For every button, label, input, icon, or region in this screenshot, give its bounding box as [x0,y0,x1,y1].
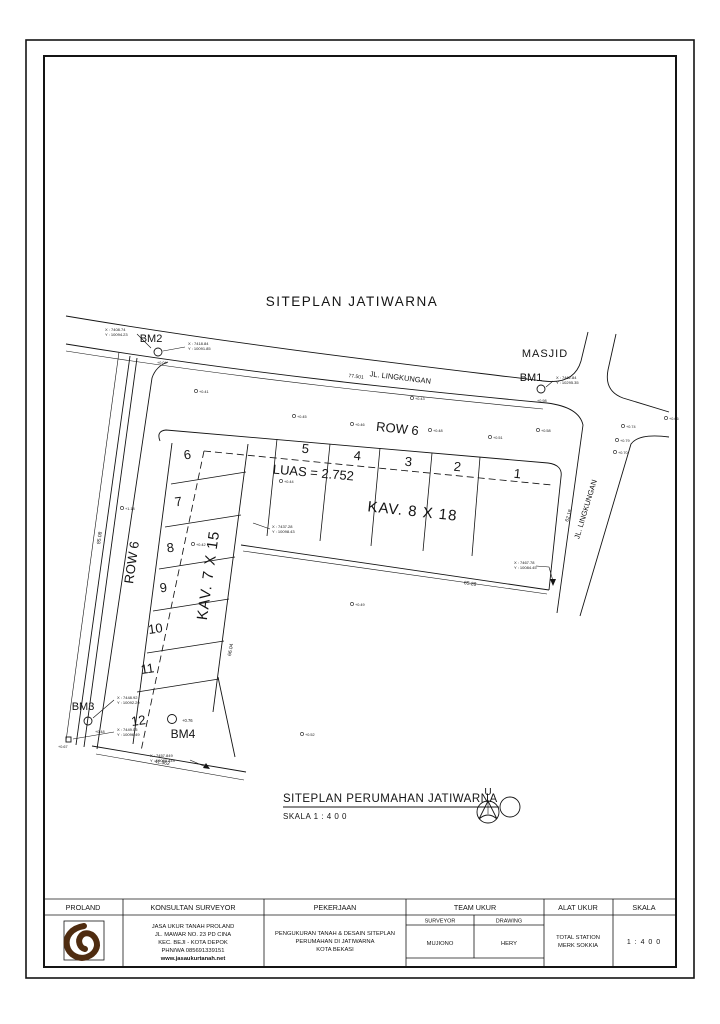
page-title: SITEPLAN JATIWARNA [266,294,439,309]
tb-drawing-name: HERY [501,941,517,947]
spot-elev: +0.74 [626,425,636,429]
bm2-left-y: Y : 10094.23 [105,332,128,337]
spot-elev: +0.49 [355,603,365,607]
tb-team-info: SURVEYOR DRAWING MUJIONO HERY [425,919,523,948]
masjid-label: MASJID [522,348,568,360]
tb-header-konsultan: KONSULTAN SURVEYOR [150,903,235,912]
plot-dividers-top [267,439,480,556]
tb-header-team: TEAM UKUR [454,903,496,912]
spot-elev: +0.48 [433,429,443,433]
bm4-elev: +0.76 [182,718,193,723]
road-right-dimension: 62.18 [564,509,573,523]
plot-6: 6 [183,447,192,463]
bm3-low-y: Y : 10096.49 [117,732,140,737]
plot-11: 11 [140,660,155,677]
benchmark-bm3: BM3 X : 7448.92 Y : 10092.29 X : 7449.05… [58,695,140,749]
road-top-dimension: 77.501 [348,373,364,381]
road-right-label: JL. LINGKUNGAN [572,478,599,540]
plot-numbers-left: 6 7 8 9 10 11 12 [130,447,192,729]
bm3-label: BM3 [72,701,95,713]
dim-left-boundary: 85.08 [96,531,104,544]
tb-konsultan-line: PHN/WA 085691339151 [162,948,225,954]
bm2-label: BM2 [140,333,163,345]
benchmark-bm4: BM4 +0.76 [168,715,196,742]
kavling-block-outline [92,430,561,780]
dim-bottom-arm: 65.28 [464,580,477,588]
plot-3: 3 [404,454,413,470]
dim-col-east: 66.04 [227,643,235,657]
spot-elev: +0.45 [297,415,307,419]
tb-header-alat: ALAT UKUR [558,903,598,912]
siteplan-drawing: SITEPLAN JATIWARNA MASJID JL. LINGKUNGAN… [0,0,720,1024]
spot-elev: +0.66 [669,417,679,421]
spot-elev: +1.18 [125,507,135,511]
bm4-label: BM4 [171,727,196,741]
kav-top-label: KAV. 8 X 18 [367,498,459,524]
plot-8: 8 [166,540,175,556]
tb-pekerjaan-info: PENGUKURAN TANAH & DESAIN SITEPLAN PERUM… [275,931,395,953]
plot-1: 1 [513,466,522,482]
corner-se-y: Y : 10084.45 [514,565,537,570]
proland-logo [64,921,104,960]
spot-elev: +0.52 [305,733,315,737]
caption-title: SITEPLAN PERUMAHAN JATIWARNA [283,793,498,805]
right-road [580,436,669,616]
siteplan-sheet: SITEPLAN JATIWARNA MASJID JL. LINGKUNGAN… [0,0,720,1024]
tb-skala-value: 1 : 4 0 0 [627,939,661,946]
north-label: U [484,787,491,798]
spot-elev: +0.51 [493,436,503,440]
plot-4: 4 [353,448,362,464]
title-block: PROLAND KONSULTAN SURVEYOR PEKERJAAN TEA… [44,899,676,966]
spot-elev: +0.42 [196,543,206,547]
plot-5: 5 [301,441,310,457]
bm1-elev: +0.98 [537,399,547,403]
row-top-label: ROW 6 [375,419,419,438]
spot-elev: +0.46 [355,423,365,427]
tb-alat-line: MERK SOKKIA [558,943,598,949]
plot-10: 10 [147,620,163,637]
plot-2: 2 [453,459,462,475]
tb-konsultan-line: JASA UKUR TANAH PROLAND [152,924,235,930]
bm3-elev: +0.48 [95,730,105,734]
tb-alat-line: TOTAL STATION [556,935,600,941]
tb-konsultan-line: JL. MAWAR NO. 23 PD CINA [155,932,231,938]
bm1-y: Y : 10295.35 [556,380,579,385]
tb-header-pekerjaan: PEKERJAAN [314,903,357,912]
bm2-right-y: Y : 10091.85 [188,346,211,351]
tb-header-skala: SKALA [632,903,655,912]
tb-pekerjaan-line: PERUMAHAN DI JATIWARNA [296,939,375,945]
tb-konsultan-line: KEC. BEJI - KOTA DEPOK [158,940,228,946]
spot-elev: +0.43 [415,397,425,401]
tb-pekerjaan-line: KOTA BEKASI [316,947,354,953]
tb-surveyor-label: SURVEYOR [425,919,456,925]
plot-7: 7 [174,494,183,510]
road-top-label: JL. LINGKUNGAN [369,369,431,385]
spot-elev: +0.44 [284,480,294,484]
tb-header-proland: PROLAND [66,903,101,912]
boundary-dimensions: 85.08 66.04 65.28 41.562 [96,531,477,767]
tb-konsultan-info: JASA UKUR TANAH PROLAND JL. MAWAR NO. 23… [152,924,235,962]
spot-elev: +0.58 [541,429,551,433]
benchmark-bm1: BM1 X : 7462.84 Y : 10295.35 +0.98 [520,372,580,403]
tb-surveyor-name: MUJIONO [427,941,454,947]
tb-konsultan-website: www.jasaukurtanah.net [160,956,226,962]
bm3-up-y: Y : 10092.29 [117,700,140,705]
spot-elev: +0.70 [618,451,628,455]
caption-scale: SKALA 1 : 4 0 0 [283,812,347,821]
dim-bottom-12: 41.562 [154,759,170,767]
corner-mid-y: Y : 10098.43 [272,529,295,534]
tb-pekerjaan-line: PENGUKURAN TANAH & DESAIN SITEPLAN [275,931,395,937]
spot-elev: +0.79 [620,439,630,443]
bm3-elev2: +0.67 [58,745,68,749]
bm1-label: BM1 [520,372,543,384]
tb-drawing-label: DRAWING [496,919,522,925]
plot-9: 9 [159,580,168,596]
bm2-elev: +0.04 [157,361,167,365]
tb-alat-info: TOTAL STATION MERK SOKKIA [556,935,600,949]
row-left-label: ROW 6 [121,540,142,584]
spot-elev: +0.41 [199,390,209,394]
